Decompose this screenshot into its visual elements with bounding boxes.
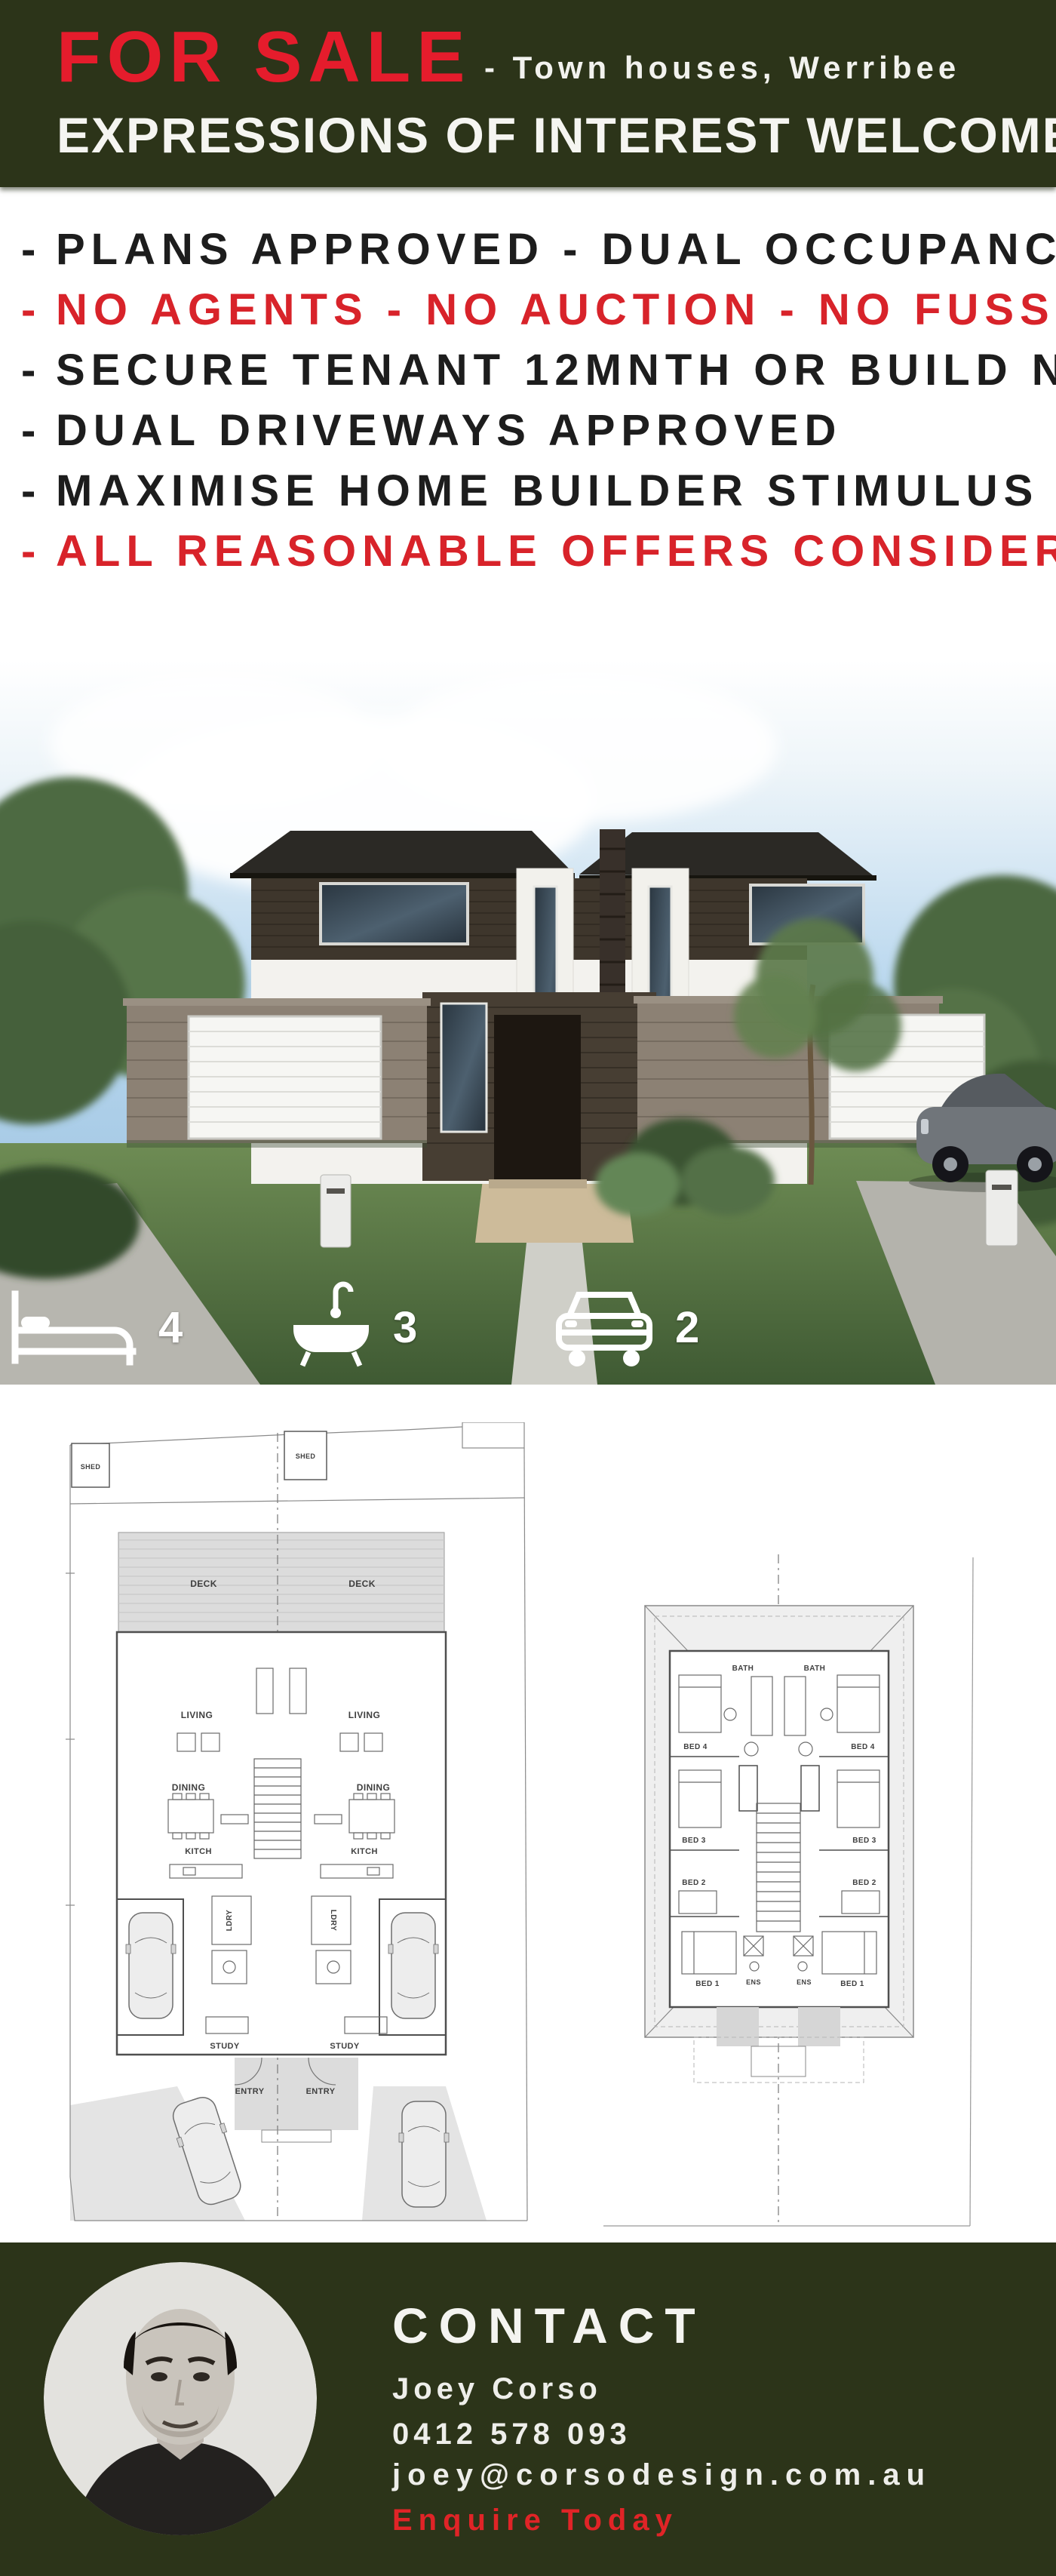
contact-email: joey@corsodesign.com.au [392,2458,932,2492]
deck-area [118,1532,444,1632]
page-title: FOR SALE [57,21,471,94]
cars-stat: 2 [553,1277,699,1377]
bullet-row: - ALL REASONABLE OFFERS CONSIDERED [0,522,1056,579]
bullet-text: PLANS APPROVED - DUAL OCCUPANCY [56,224,1056,275]
stat-value: 2 [675,1302,699,1353]
plan-label-bath1: BATH [732,1665,754,1673]
plan-label-bed2b: BED 2 [852,1879,876,1887]
plan-label-entry1: ENTRY [235,2087,265,2096]
plan-label-dining2: DINING [357,1782,390,1793]
garage-door-left [189,1016,381,1139]
plan-label-deck2: DECK [348,1578,376,1589]
beds-stat: 4 [9,1277,183,1377]
bullet-dash: - [21,345,56,395]
plan-label-bed1b: BED 1 [840,1980,864,1988]
garage-car-right [388,1913,438,2018]
header-subtitle: - Town houses, Werribee [484,50,960,86]
car-icon [553,1286,655,1369]
contact-name: Joey Corso [392,2372,602,2406]
plan-label-living2: LIVING [348,1710,380,1720]
plan-label-bed1a: BED 1 [695,1980,719,1988]
contact-phone: 0412 578 093 [392,2418,631,2452]
plan-label-bed2a: BED 2 [682,1879,705,1887]
entry-steps [262,2130,331,2142]
plan-label-study2: STUDY [330,2042,360,2051]
plan-label-kitch2: KITCH [351,1847,378,1856]
plan-label-entry2: ENTRY [306,2087,336,2096]
house-render-photo [0,660,1056,1385]
plan-label-kitch1: KITCH [185,1847,212,1856]
plan-label-ens1: ENS [746,1978,761,1986]
plan-label-ldry1: LDRY [226,1910,234,1931]
bullet-dash: - [21,526,56,576]
flyer-page: FOR SALE - Town houses, Werribee EXPRESS… [0,0,1056,2576]
plan-label-bed4a: BED 4 [683,1743,707,1751]
garage-car-left [126,1913,176,2018]
bullet-text: MAXIMISE HOME BUILDER STIMULUS [56,466,1039,516]
upper-window-left [321,884,468,944]
plan-label-dining1: DINING [172,1782,205,1793]
contact-cta: Enquire Today [392,2504,678,2538]
plan-label-ens2: ENS [797,1978,812,1986]
bullet-dash: - [21,405,56,456]
baths-stat: 3 [289,1277,417,1377]
left-roof [230,831,575,875]
bed-icon [9,1288,139,1366]
plan-label-living1: LIVING [181,1710,213,1720]
bullet-row: - SECURE TENANT 12MNTH OR BUILD NOW [0,341,1056,398]
bullet-row: - PLANS APPROVED - DUAL OCCUPANCY [0,220,1056,278]
floorplan-ground: SHED SHED DECK DECK LIVING LIVING DINING… [64,1422,532,2226]
contact-heading: CONTACT [392,2297,706,2354]
bullet-row: - NO AGENTS - NO AUCTION - NO FUSS [0,281,1056,338]
bullet-dash: - [21,284,56,335]
stat-value: 3 [393,1302,417,1353]
stat-value: 4 [158,1302,183,1353]
plan-label-deck1: DECK [190,1578,217,1589]
header-tagline: EXPRESSIONS OF INTEREST WELCOME [57,110,1056,160]
bullet-row: - DUAL DRIVEWAYS APPROVED [0,401,1056,459]
bullet-row: - MAXIMISE HOME BUILDER STIMULUS [0,462,1056,519]
porch-right [798,2007,840,2046]
contact-section: CONTACT Joey Corso 0412 578 093 joey@cor… [0,2242,1056,2576]
plan-label-bed4b: BED 4 [851,1743,874,1751]
plan-label-bath2: BATH [804,1665,826,1673]
plan-label-shed2: SHED [296,1452,316,1460]
bullet-text: NO AGENTS - NO AUCTION - NO FUSS [56,284,1055,335]
bullet-text: SECURE TENANT 12MNTH OR BUILD NOW [56,345,1056,395]
bullet-dash: - [21,224,56,275]
floorplan-first: BATH BATH BED 4 BED 4 B [603,1554,981,2233]
bullet-text: ALL REASONABLE OFFERS CONSIDERED [56,526,1056,576]
plan-label-bed3a: BED 3 [682,1837,705,1845]
plan-label-ldry2: LDRY [329,1910,337,1931]
porch-left [717,2007,759,2046]
bullet-dash: - [21,466,56,516]
avatar [44,2262,317,2535]
bath-icon [289,1281,373,1373]
mailbox-left [321,1175,351,1247]
agent-portrait [44,2262,317,2535]
entry-recess [494,1015,581,1181]
plan-label-bed3b: BED 3 [852,1837,876,1845]
driveway-car-right [399,2101,449,2207]
mailbox-right [986,1170,1018,1246]
plan-label-shed1: SHED [81,1463,101,1471]
property-stats-row: 4 3 2 [0,1277,1056,1377]
plan-label-study1: STUDY [210,2042,240,2051]
header-banner: FOR SALE - Town houses, Werribee EXPRESS… [0,0,1056,187]
entry-window [441,1004,487,1132]
bullet-text: DUAL DRIVEWAYS APPROVED [56,405,842,456]
